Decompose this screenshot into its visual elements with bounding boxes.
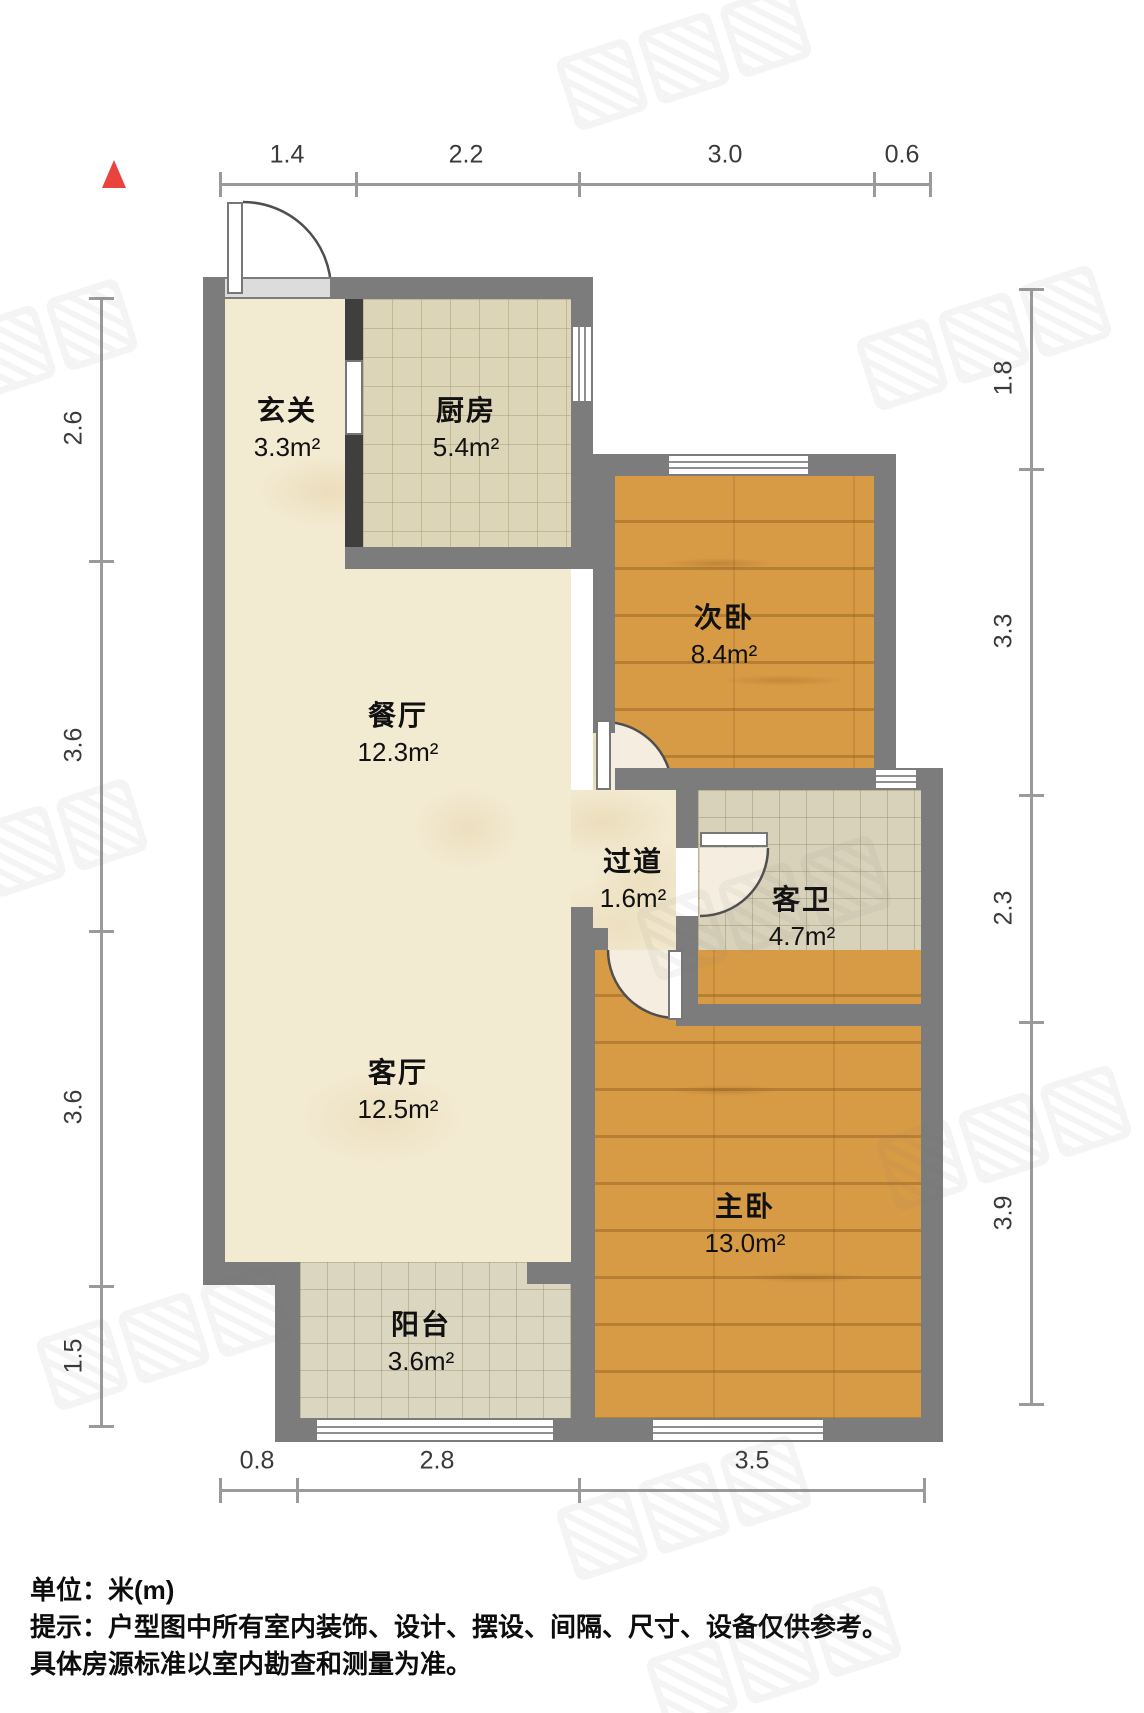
watermark-logo	[854, 264, 1113, 413]
north-indicator-icon	[102, 160, 126, 188]
bathroom-window	[874, 768, 918, 790]
dim-tick	[1019, 794, 1044, 797]
wall-kitchen-right	[571, 277, 593, 560]
wall-entry-kitchen-divider-bottom	[345, 435, 363, 547]
room-area: 12.3m²	[358, 737, 439, 768]
wall-master-top	[571, 928, 608, 950]
room-name: 厨房	[433, 389, 499, 429]
dim-tick	[1019, 468, 1044, 471]
bedroom2-window	[667, 454, 810, 476]
bedroom2-door-leaf	[596, 720, 611, 790]
dim-line-bottom	[219, 1489, 926, 1492]
dim-line-right	[1030, 288, 1033, 1406]
wall-bathroom-left-upper	[676, 790, 698, 848]
dim-label-top: 1.4	[270, 141, 305, 170]
wall-master-left	[571, 928, 595, 1442]
dim-label-left: 3.6	[60, 728, 89, 763]
dim-tick	[355, 172, 358, 197]
dim-tick	[1019, 1021, 1044, 1024]
master-window	[651, 1418, 825, 1442]
wall-right-outer	[921, 768, 943, 1442]
room-label-entry: 玄关 3.3m²	[254, 389, 320, 463]
wall-left-outer	[203, 277, 225, 1285]
room-label-kitchen: 厨房 5.4m²	[433, 389, 499, 463]
room-name: 客厅	[358, 1051, 439, 1091]
room-label-living: 客厅 12.5m²	[358, 1051, 439, 1125]
watermark-logo	[0, 777, 150, 899]
room-area: 13.0m²	[705, 1228, 786, 1259]
room-label-master: 主卧 13.0m²	[705, 1185, 786, 1259]
room-area: 5.4m²	[433, 432, 499, 463]
wall-bedroom2-left	[593, 476, 615, 733]
watermark-logo	[554, 1434, 813, 1583]
room-name: 餐厅	[358, 694, 439, 734]
room-label-bedroom2: 次卧 8.4m²	[691, 596, 757, 670]
room-area: 8.4m²	[691, 639, 757, 670]
room-name: 次卧	[691, 596, 757, 636]
dim-tick	[219, 172, 222, 197]
watermark-logo	[0, 277, 140, 399]
wall-bathroom-bottom	[676, 1004, 921, 1026]
wall-entry-kitchen-divider-top	[345, 299, 363, 360]
room-area: 3.3m²	[254, 432, 320, 463]
watermark-logo	[34, 1264, 293, 1413]
wall-balcony-living-stub	[527, 1262, 571, 1284]
entry-kitchen-sliding-door	[345, 360, 363, 435]
watermark-logo	[554, 0, 813, 132]
dim-tick	[296, 1478, 299, 1503]
balcony-window	[315, 1418, 555, 1442]
dim-label-right: 3.3	[990, 614, 1019, 649]
dim-label-bottom: 2.8	[420, 1447, 455, 1476]
dim-tick	[873, 172, 876, 197]
wall-kitchen-bottom	[345, 547, 593, 569]
dim-tick	[219, 1478, 222, 1503]
dim-tick	[89, 930, 114, 933]
room-area: 3.6m²	[388, 1346, 454, 1377]
room-area: 12.5m²	[358, 1094, 439, 1125]
bathroom-door-leaf	[700, 832, 768, 847]
floorplan-canvas: 玄关 3.3m² 厨房 5.4m² 次卧 8.4m² 餐厅 12.3m² 过道 …	[0, 0, 1144, 1713]
wall-bedroom2-right	[874, 454, 896, 790]
dim-tick	[89, 560, 114, 563]
dim-label-top: 3.0	[708, 141, 743, 170]
room-label-balcony: 阳台 3.6m²	[388, 1303, 454, 1377]
dim-label-top: 0.6	[885, 141, 920, 170]
dim-label-top: 2.2	[449, 141, 484, 170]
room-name: 过道	[600, 840, 666, 880]
room-name: 主卧	[705, 1185, 786, 1225]
dim-tick	[578, 172, 581, 197]
room-label-dining: 餐厅 12.3m²	[358, 694, 439, 768]
dim-label-right: 3.9	[990, 1196, 1019, 1231]
dim-tick	[1019, 1403, 1044, 1406]
dim-tick	[929, 172, 932, 197]
footer-unit: 单位：米(m)	[30, 1572, 888, 1609]
kitchen-window	[571, 325, 593, 403]
dim-tick	[89, 1425, 114, 1428]
dim-label-right: 2.3	[990, 891, 1019, 926]
room-name: 玄关	[254, 389, 320, 429]
dim-line-top	[219, 183, 932, 186]
dim-tick	[923, 1478, 926, 1503]
dim-label-left: 3.6	[60, 1090, 89, 1125]
entrance-door-leaf	[227, 202, 243, 294]
dim-label-bottom: 0.8	[240, 1447, 275, 1476]
dim-tick	[578, 1478, 581, 1503]
dim-tick	[89, 1285, 114, 1288]
room-name: 阳台	[388, 1303, 454, 1343]
dim-label-left: 2.6	[60, 411, 89, 446]
